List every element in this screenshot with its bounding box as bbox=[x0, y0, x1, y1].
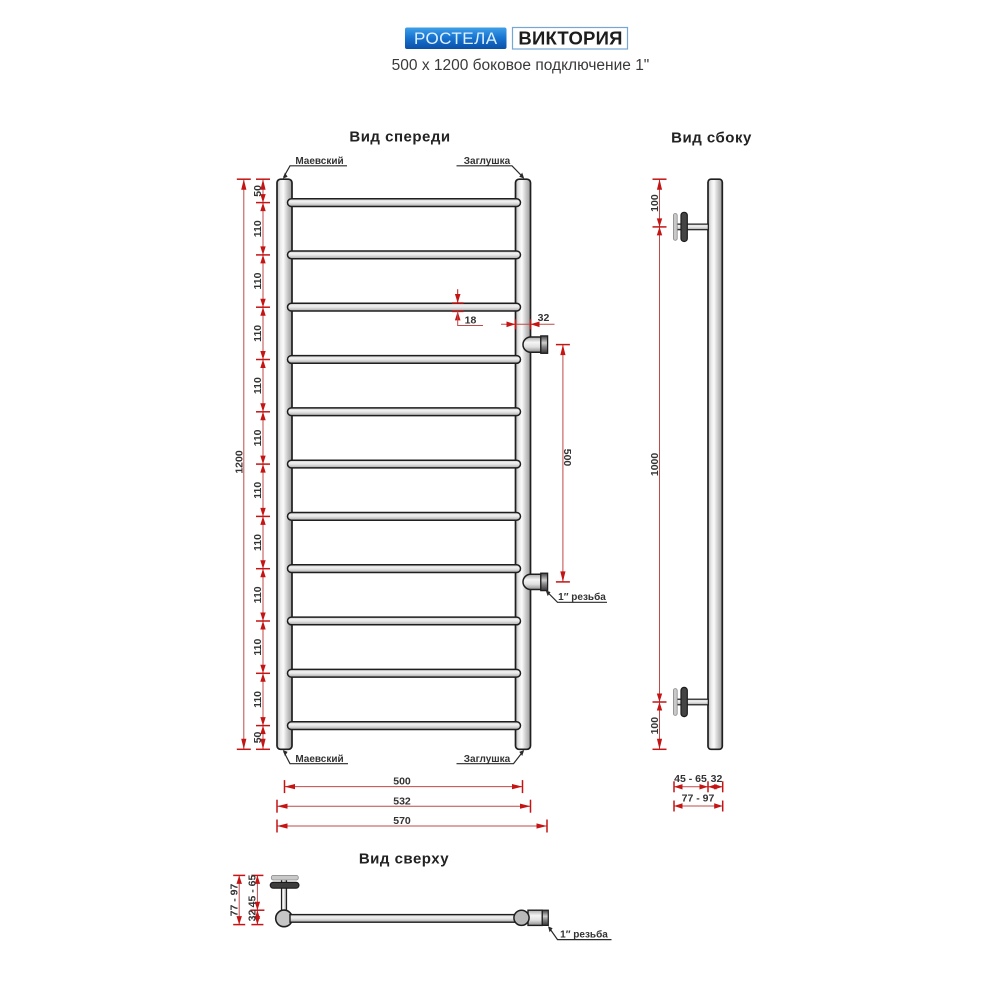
svg-text:110: 110 bbox=[252, 586, 264, 603]
svg-text:110: 110 bbox=[252, 272, 264, 289]
svg-text:100: 100 bbox=[649, 717, 661, 735]
svg-text:50: 50 bbox=[252, 731, 264, 743]
svg-text:РОСТЕЛА: РОСТЕЛА bbox=[414, 29, 498, 48]
svg-text:100: 100 bbox=[649, 194, 661, 212]
svg-text:500: 500 bbox=[561, 449, 573, 467]
svg-text:32: 32 bbox=[538, 312, 550, 324]
svg-text:Вид сбоку: Вид сбоку bbox=[671, 130, 752, 147]
svg-text:77 - 97: 77 - 97 bbox=[682, 793, 715, 805]
svg-text:1′′ резьба: 1′′ резьба bbox=[560, 928, 608, 940]
svg-text:500 x 1200 боковое подключение: 500 x 1200 боковое подключение 1" bbox=[392, 57, 650, 74]
svg-text:ВИКТОРИЯ: ВИКТОРИЯ bbox=[518, 27, 622, 48]
svg-text:1′′ резьба: 1′′ резьба bbox=[558, 591, 606, 603]
svg-text:110: 110 bbox=[252, 482, 264, 499]
svg-text:1000: 1000 bbox=[649, 453, 661, 477]
svg-text:18: 18 bbox=[465, 315, 477, 327]
svg-text:1200: 1200 bbox=[233, 450, 245, 474]
svg-text:Маевский: Маевский bbox=[295, 156, 343, 167]
svg-text:110: 110 bbox=[252, 220, 264, 237]
svg-text:32: 32 bbox=[711, 773, 723, 785]
svg-text:532: 532 bbox=[393, 795, 411, 807]
svg-text:45 - 65: 45 - 65 bbox=[674, 773, 707, 785]
svg-text:32: 32 bbox=[247, 910, 259, 922]
svg-text:110: 110 bbox=[252, 377, 264, 394]
svg-text:110: 110 bbox=[252, 639, 264, 656]
svg-text:110: 110 bbox=[252, 691, 264, 708]
svg-text:110: 110 bbox=[252, 534, 264, 551]
svg-text:110: 110 bbox=[252, 325, 264, 342]
svg-text:Вид сверху: Вид сверху bbox=[359, 851, 449, 868]
svg-text:Заглушка: Заглушка bbox=[464, 156, 511, 167]
svg-text:500: 500 bbox=[393, 775, 411, 787]
svg-text:Вид спереди: Вид спереди bbox=[349, 129, 450, 146]
svg-text:45 - 65: 45 - 65 bbox=[247, 875, 259, 908]
svg-text:110: 110 bbox=[252, 429, 264, 446]
svg-text:77 - 97: 77 - 97 bbox=[228, 884, 240, 917]
svg-text:570: 570 bbox=[393, 815, 411, 827]
svg-text:50: 50 bbox=[252, 185, 264, 197]
